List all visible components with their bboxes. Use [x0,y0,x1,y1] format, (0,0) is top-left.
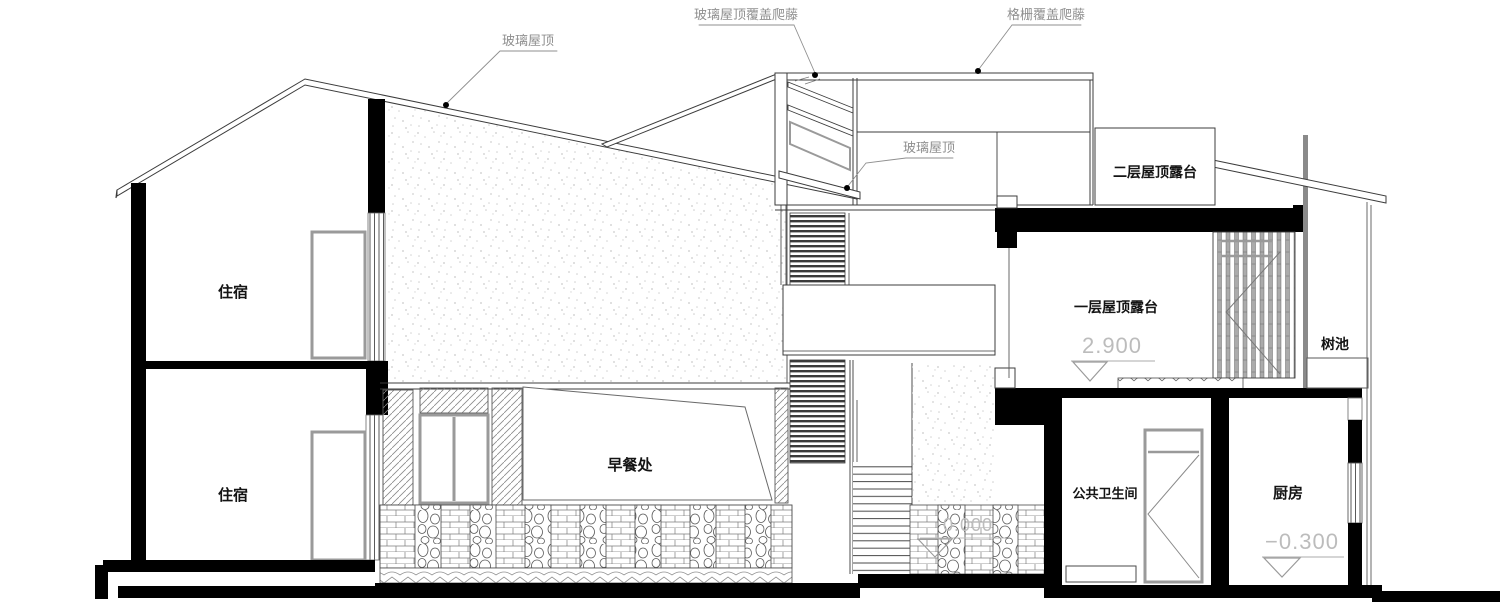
door-frame-upper [312,232,365,358]
pebble-pier [690,505,716,568]
kitchen-right-wall-lower [1348,523,1362,585]
mid-floor-slab [146,361,368,369]
tree-pit-box [1307,358,1368,388]
hatched-wall-2 [492,388,522,505]
breakfast-wing: 早餐处 [380,383,792,583]
leader-dot [844,185,850,191]
restroom-curb [1066,566,1136,582]
leader-dot [443,102,449,108]
wing-floor-slab [1044,585,1372,598]
right-cut-wall-top [368,99,385,213]
hatched-wall-3 [775,388,788,503]
annotation-text: 玻璃屋顶 [903,140,955,155]
pebble-pier [415,505,441,568]
louver-panel-upper [790,213,845,285]
hatched-wall-1 [383,390,413,505]
pebble-pier [580,505,606,568]
label-roof-terrace-l1: 一层屋顶露台 [1074,299,1158,315]
terrace-level-two-box: 二层屋顶露台 [1095,128,1215,205]
terrace-roof-slab [995,208,1307,232]
label-public-restroom: 公共卫生间 [1072,486,1137,501]
door-frame-lower [312,432,365,560]
dividing-wall [1211,398,1229,585]
pebble-pier [635,505,661,568]
pebble-pier [525,505,551,568]
terrace-floor-slab [1044,388,1362,398]
elevation-value-minus-0300: −0.300 [1265,529,1339,554]
label-kitchen: 厨房 [1273,484,1303,502]
balcony-band [783,285,995,355]
ground-band-mid [858,574,1046,588]
restroom-left-wall [1044,425,1062,585]
label-accommodation-lower: 住宿 [218,486,248,504]
elevation-value-2900: 2.900 [1082,333,1142,358]
tree-trunk-post [1303,135,1308,388]
parapet-step [995,368,1015,388]
label-tree-pit: 树池 [1321,336,1349,352]
label-accommodation-upper: 住宿 [218,283,248,301]
pavilion-post [775,73,787,205]
parapet-cap [997,196,1017,208]
vertical-louver-screen [1213,232,1295,378]
pebble-pier [470,505,496,568]
ground-band-right [1372,591,1500,602]
left-cut-wall [131,183,146,562]
kitchen-window [1348,463,1362,523]
louver-panel-lower [790,360,845,463]
ground-floor-slab [103,560,375,572]
glazing-strip-upper [368,213,385,361]
annotation-text: 格栅覆盖爬藤 [1007,7,1085,22]
ground-band-left [118,586,860,598]
pavilion-top-band [787,73,1093,80]
pebble-pier [745,505,771,568]
kitchen-right-wall-upper [1348,420,1362,463]
label-roof-terrace-l2: 二层屋顶露台 [1113,164,1197,180]
wall-top-gap [1348,398,1362,420]
right-wing: 公共卫生间 厨房 [1044,398,1372,598]
section-drawing-canvas: 住宿 住宿 早餐处 [0,0,1500,605]
left-ground-step [95,565,108,599]
stipple-wall-patch [912,363,995,505]
stair-flight [853,462,912,574]
annotation-text: 玻璃屋顶 [502,33,554,48]
annotation-text: 玻璃屋顶覆盖爬藤 [694,7,798,22]
hatched-lintel [420,388,488,413]
leader-dot [975,68,981,74]
elevation-value-0000: 0.000 [943,515,993,535]
leader-dot [812,72,818,78]
pebble-pier [993,505,1018,574]
zigzag-footing [380,568,792,583]
label-breakfast-area: 早餐处 [607,456,653,474]
slab-stub [997,232,1017,248]
